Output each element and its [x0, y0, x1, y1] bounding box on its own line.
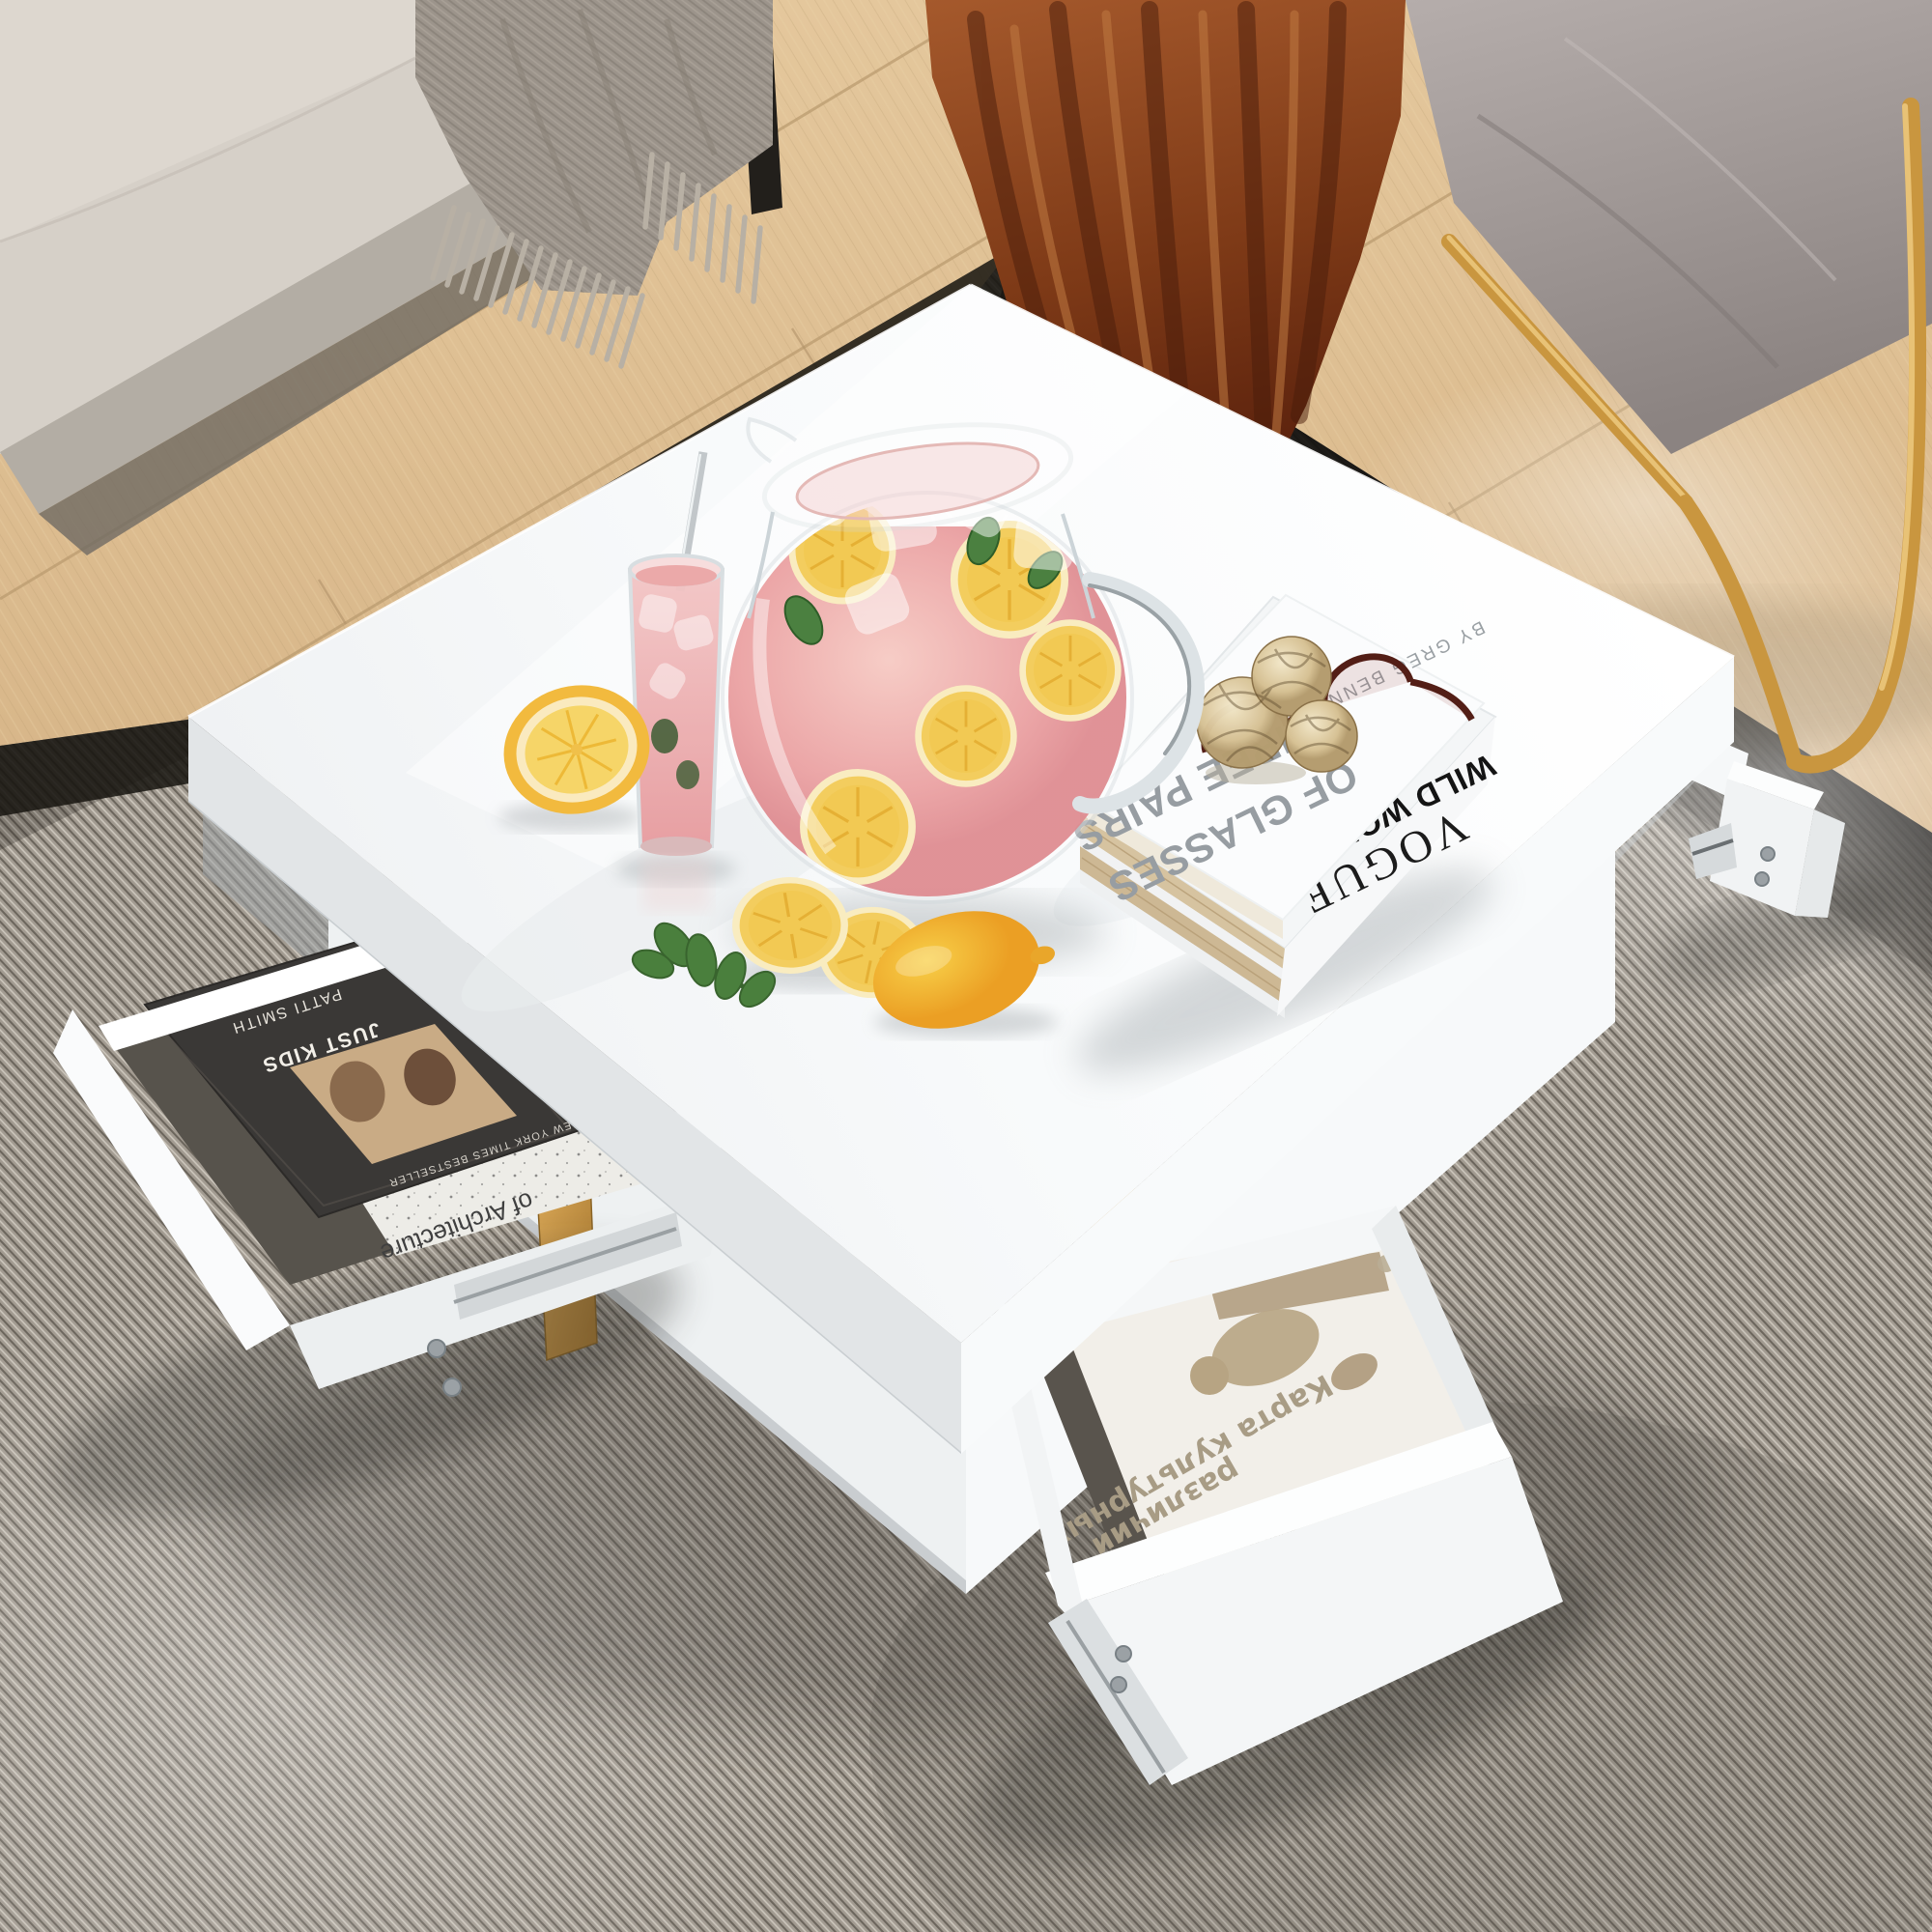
screw — [1111, 1677, 1126, 1692]
glass-mint — [651, 719, 678, 753]
screw — [428, 1340, 445, 1357]
living-room-product-photo: of Architecture PATTI SMITH JUST KIDS NE… — [0, 0, 1932, 1932]
screw — [1755, 872, 1769, 886]
screw — [443, 1378, 461, 1396]
glass-reflection — [643, 858, 709, 911]
screw — [1116, 1646, 1131, 1662]
screw — [1761, 847, 1775, 861]
